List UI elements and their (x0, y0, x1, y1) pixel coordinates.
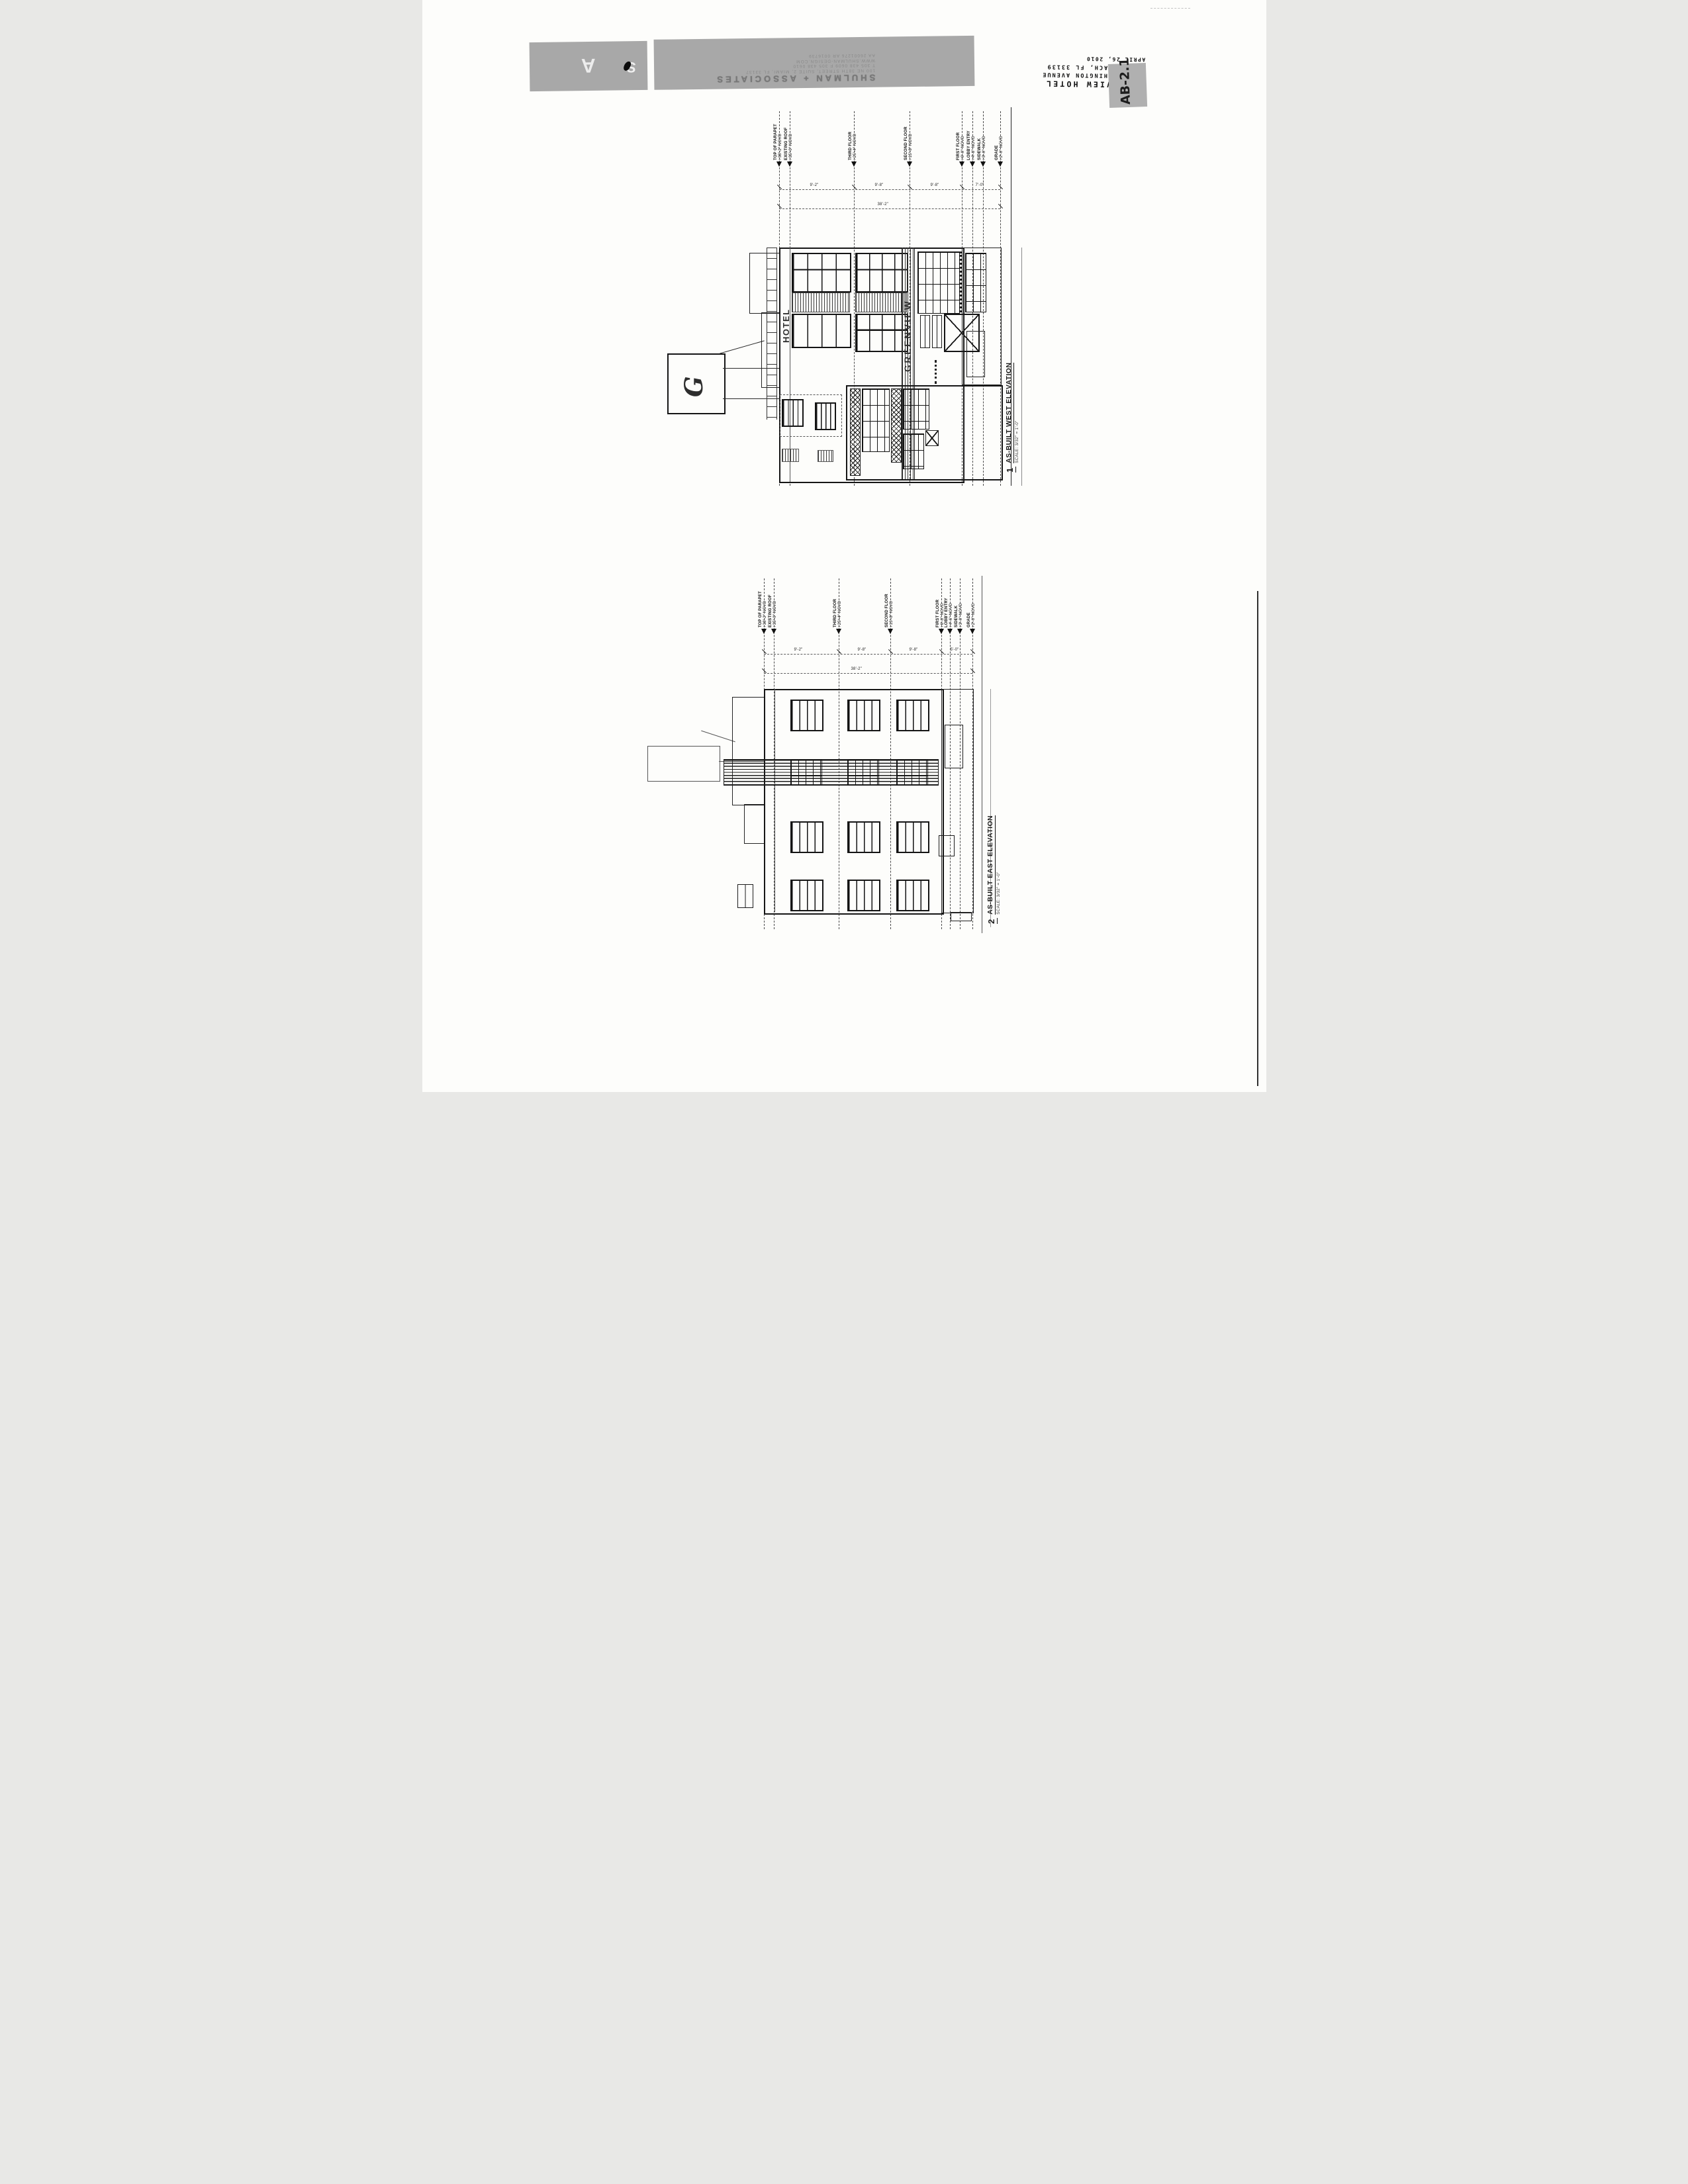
small-window (737, 884, 753, 908)
drawing-title-wrap: AS-BUILT WEST ELEVATION SCALE: 3/32" = 1… (1005, 363, 1019, 463)
dimension-line (779, 208, 1000, 209)
arrow-icon (970, 629, 975, 637)
drawing-title: AS-BUILT WEST ELEVATION (1005, 363, 1014, 463)
dimension-text: 9'-2" (810, 183, 819, 187)
window-group (855, 314, 908, 352)
window-group (847, 880, 880, 911)
drawing-number: 1 (1005, 467, 1016, 473)
window-group (855, 253, 908, 293)
x-lattice-railing (850, 388, 861, 476)
drawing-scale: SCALE: 3/32" = 1'-0" (996, 815, 1001, 915)
west-elevation-drawing: TOP OF PARAPET+38'-2" NGVD EXISTING ROOF… (422, 0, 1266, 549)
x-braced-window (925, 430, 939, 446)
arrow-icon (947, 629, 953, 637)
window-group (896, 880, 929, 911)
arrow-icon (776, 161, 782, 169)
dimension-line (764, 673, 972, 674)
arrow-icon (959, 161, 964, 169)
arrow-icon (957, 629, 962, 637)
parapet-line (774, 689, 775, 912)
window-group (847, 700, 880, 731)
sign-brace (720, 340, 765, 353)
dimension-text: 9'-2" (794, 648, 803, 652)
sheet-scan: A S SHULMAN + ASSOCIATES 100 NE 38TH STR… (422, 0, 1266, 1092)
entry-steps (951, 912, 972, 921)
arrow-icon (851, 161, 857, 169)
dimension-line (764, 654, 972, 655)
basement-window (939, 835, 955, 856)
window-group (782, 399, 804, 427)
arrow-icon (980, 161, 986, 169)
drawing-number: 2 (986, 918, 998, 924)
dimension-text: 38'-2" (878, 203, 888, 206)
arrow-icon (907, 161, 912, 169)
storefront-grid (862, 388, 890, 452)
arrow-icon (761, 629, 767, 637)
window-group (896, 821, 929, 853)
spandrel-hatch (792, 293, 850, 312)
window-group (792, 314, 851, 348)
roof-ladder (767, 248, 777, 420)
stair-window-grid (896, 759, 928, 786)
dimension-text: 9'-8" (875, 183, 884, 187)
tall-window (920, 315, 930, 348)
dimension-text: 9'-8" (858, 648, 867, 652)
arrow-icon (888, 629, 893, 637)
window-group (790, 880, 823, 911)
stair-window-grid (790, 759, 822, 786)
storefront-grid (903, 433, 924, 469)
dimension-text: 5'-0" (951, 648, 959, 652)
storefront-grid (903, 388, 929, 430)
hotel-sign-text: HOTEL (781, 308, 791, 343)
ground-line (982, 576, 982, 933)
window-group (847, 821, 880, 853)
drawing-title: AS-BUILT EAST ELEVATION (986, 815, 996, 915)
east-elevation-drawing: TOP OF PARAPET+38'-2" NGVD EXISTING ROOF… (422, 549, 1266, 1072)
parapet-step (744, 804, 765, 844)
entry-door (966, 331, 985, 377)
sign-logo-g: G (679, 376, 708, 397)
rooftop-sign-back (647, 746, 720, 782)
arrow-icon (998, 161, 1003, 169)
drawing-title-wrap: AS-BUILT EAST ELEVATION SCALE: 3/32" = 1… (986, 815, 1001, 915)
dimension-text: 9'-8" (931, 183, 939, 187)
railing-hatch (818, 450, 833, 462)
window-group (792, 253, 851, 293)
sign-brace (701, 731, 735, 743)
drawing-title-label: 1 AS-BUILT WEST ELEVATION SCALE: 3/32" =… (1005, 363, 1019, 473)
window-group (790, 700, 823, 731)
storefront-grid (917, 251, 960, 314)
dimension-text: 7'-0" (976, 183, 984, 187)
tall-window (932, 315, 942, 348)
window-group (896, 700, 929, 731)
arrow-icon (836, 629, 841, 637)
arrow-icon (771, 629, 776, 637)
dimension-text: 9'-8" (910, 648, 918, 652)
railing-hatch (782, 449, 799, 462)
parapet-line (790, 248, 790, 480)
dimension-text: 38'-2" (851, 667, 862, 671)
entry-door (945, 725, 963, 768)
drawing-title-label: 2 AS-BUILT EAST ELEVATION SCALE: 3/32" =… (986, 815, 1001, 924)
arrow-icon (787, 161, 792, 169)
window-group (790, 821, 823, 853)
awning-scallop-edge (932, 360, 937, 384)
awning-scallop-edge (957, 251, 962, 312)
window-group (815, 402, 836, 430)
spandrel-hatch (855, 293, 907, 312)
stair-tower-bulkhead (732, 697, 765, 805)
storefront-grid (965, 253, 986, 312)
greenview-sign-text: GREENVIEW (903, 299, 913, 372)
arrow-icon (939, 629, 944, 637)
stair-window-grid (847, 759, 879, 786)
dimension-line (779, 189, 1000, 190)
drawing-scale: SCALE: 3/32" = 1'-0" (1015, 363, 1019, 463)
ground-story-front (941, 689, 974, 913)
arrow-icon (970, 161, 975, 169)
ground-line (1021, 248, 1022, 486)
x-lattice-railing (891, 388, 902, 463)
